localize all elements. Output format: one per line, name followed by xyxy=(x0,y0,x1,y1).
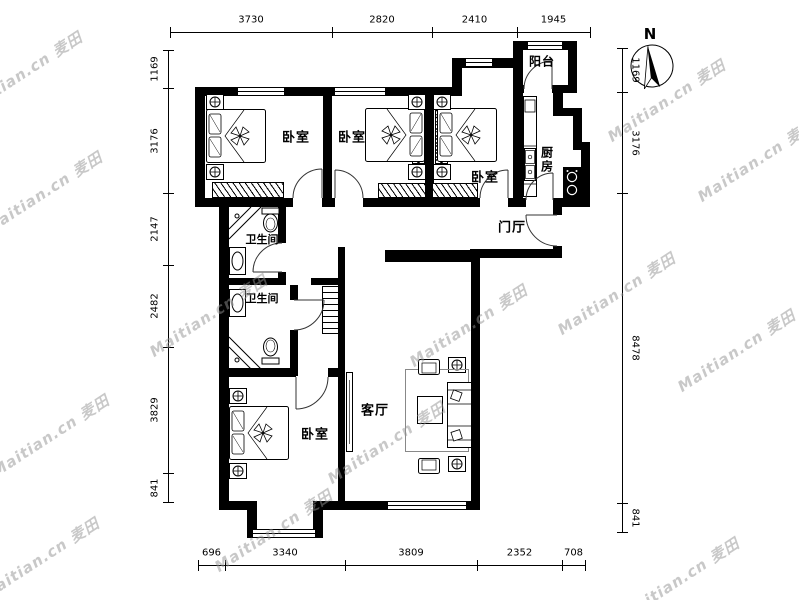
bed-bedroom1 xyxy=(207,110,266,163)
toilet xyxy=(262,208,279,232)
dimension-tick xyxy=(163,347,174,348)
dim-label: 3809 xyxy=(398,548,423,559)
tv-cabinet xyxy=(347,373,353,452)
dim-label: 696 xyxy=(202,548,221,559)
wall xyxy=(219,278,283,285)
shower xyxy=(229,337,261,369)
dimension-tick xyxy=(345,560,346,571)
dimension-tick xyxy=(332,27,333,38)
dim-label: 2820 xyxy=(369,15,394,26)
wall xyxy=(290,285,298,300)
dim-label: 3176 xyxy=(630,130,641,155)
watermark: Maitian.cn 麦田 xyxy=(617,532,743,600)
dim-label: 1169 xyxy=(630,57,641,82)
dim-label: 841 xyxy=(630,508,641,527)
room-label-bedroom3: 卧室 xyxy=(471,167,499,186)
wall xyxy=(452,58,462,96)
room-label-bath1: 卫生间 xyxy=(246,231,279,247)
window xyxy=(388,501,466,510)
wardrobe xyxy=(435,108,448,164)
watermark: Maitian.cn 麦田 xyxy=(0,389,113,481)
dimension-tick xyxy=(617,503,628,504)
stove xyxy=(563,167,581,198)
wall xyxy=(195,87,205,207)
dimension-tick xyxy=(590,27,591,38)
watermark: Maitian.cn 麦田 xyxy=(405,279,531,371)
wall xyxy=(513,41,523,198)
dimension-tick xyxy=(617,92,628,93)
wall xyxy=(553,246,562,258)
wardrobe xyxy=(412,108,425,164)
wall xyxy=(508,198,526,207)
dimension-tick xyxy=(163,50,174,51)
dimension-tick xyxy=(163,193,174,194)
dimension-tick xyxy=(170,27,171,38)
room-label-bedroom1: 卧室 xyxy=(282,127,310,146)
dimension-tick xyxy=(477,560,478,571)
wall xyxy=(219,207,229,510)
window xyxy=(253,529,315,538)
wall xyxy=(278,207,286,243)
dimension-tick xyxy=(617,532,628,533)
dim-label: 2482 xyxy=(150,293,161,318)
window xyxy=(335,87,385,96)
dim-label: 3340 xyxy=(272,548,297,559)
dim-label: 3730 xyxy=(238,15,263,26)
bathroom-sink xyxy=(230,290,246,317)
radiator xyxy=(212,182,284,198)
wall xyxy=(363,198,480,207)
wall xyxy=(471,249,480,510)
watermark: Maitian.cn 麦田 xyxy=(673,304,799,396)
armchair xyxy=(419,360,440,474)
dim-label: 2147 xyxy=(150,216,161,241)
floor-plan: 卧室 卧室 卧室 卧室 客厅 厨房 阳台 门厅 卫生间 卫生间 N 373028… xyxy=(0,0,799,600)
watermark: Maitian.cn 麦田 xyxy=(0,512,103,600)
sofa xyxy=(447,383,472,448)
north-label: N xyxy=(644,25,657,43)
dimension-tick xyxy=(163,88,174,89)
dim-label: 2352 xyxy=(507,548,532,559)
kitchen-counter xyxy=(523,97,537,197)
dimension-line xyxy=(622,48,623,532)
room-label-bath2: 卫生间 xyxy=(246,290,279,306)
wall xyxy=(219,368,296,377)
dimension-line xyxy=(170,32,590,33)
coffee-table xyxy=(418,397,443,424)
room-label-hall: 门厅 xyxy=(498,217,526,236)
wall xyxy=(385,250,473,262)
room-label-bedroom2: 卧室 xyxy=(338,127,366,146)
dim-label: 2410 xyxy=(462,15,487,26)
rug xyxy=(406,370,469,452)
window xyxy=(528,41,562,50)
watermark: Maitian.cn 麦田 xyxy=(693,114,799,206)
dimension-tick xyxy=(517,27,518,38)
wall xyxy=(553,198,590,207)
dim-label: 1945 xyxy=(541,15,566,26)
dimension-tick xyxy=(163,265,174,266)
dimension-tick xyxy=(225,560,226,571)
dim-label: 708 xyxy=(564,548,583,559)
dim-label: 1169 xyxy=(150,56,161,81)
wall xyxy=(513,85,524,93)
wall xyxy=(323,96,332,198)
dimension-line xyxy=(198,565,585,566)
watermark: Maitian.cn 麦田 xyxy=(0,146,106,238)
watermark: Maitian.cn 麦田 xyxy=(0,26,86,118)
wall xyxy=(470,249,562,258)
kitchen-sink xyxy=(525,149,536,181)
dim-label: 3829 xyxy=(150,397,161,422)
dim-label: 841 xyxy=(150,478,161,497)
dimension-tick xyxy=(163,473,174,474)
dim-label: 8478 xyxy=(630,335,641,360)
watermark: Maitian.cn 麦田 xyxy=(553,247,679,339)
toilet xyxy=(262,338,279,364)
dimension-tick xyxy=(432,27,433,38)
wall xyxy=(338,247,345,510)
dimension-tick xyxy=(198,560,199,571)
dimension-tick xyxy=(163,502,174,503)
bathroom-sink xyxy=(230,248,246,275)
dimension-tick xyxy=(585,560,586,571)
window xyxy=(466,58,492,68)
room-label-bedroom4: 卧室 xyxy=(301,424,329,443)
dim-label: 3176 xyxy=(150,128,161,153)
wall xyxy=(195,198,293,207)
dimension-tick xyxy=(562,560,563,571)
room-label-kitchen: 厨房 xyxy=(539,146,556,174)
room-label-living: 客厅 xyxy=(361,400,389,419)
dimension-line xyxy=(168,50,169,502)
wall xyxy=(195,87,462,96)
radiator xyxy=(378,183,426,198)
dimension-tick xyxy=(617,48,628,49)
dimension-tick xyxy=(617,193,628,194)
wall xyxy=(322,198,335,207)
wall xyxy=(553,207,562,215)
window xyxy=(238,87,284,96)
hall-wardrobe xyxy=(322,286,339,334)
room-label-balcony: 阳台 xyxy=(529,53,555,70)
bed-bedroom4 xyxy=(230,407,289,460)
